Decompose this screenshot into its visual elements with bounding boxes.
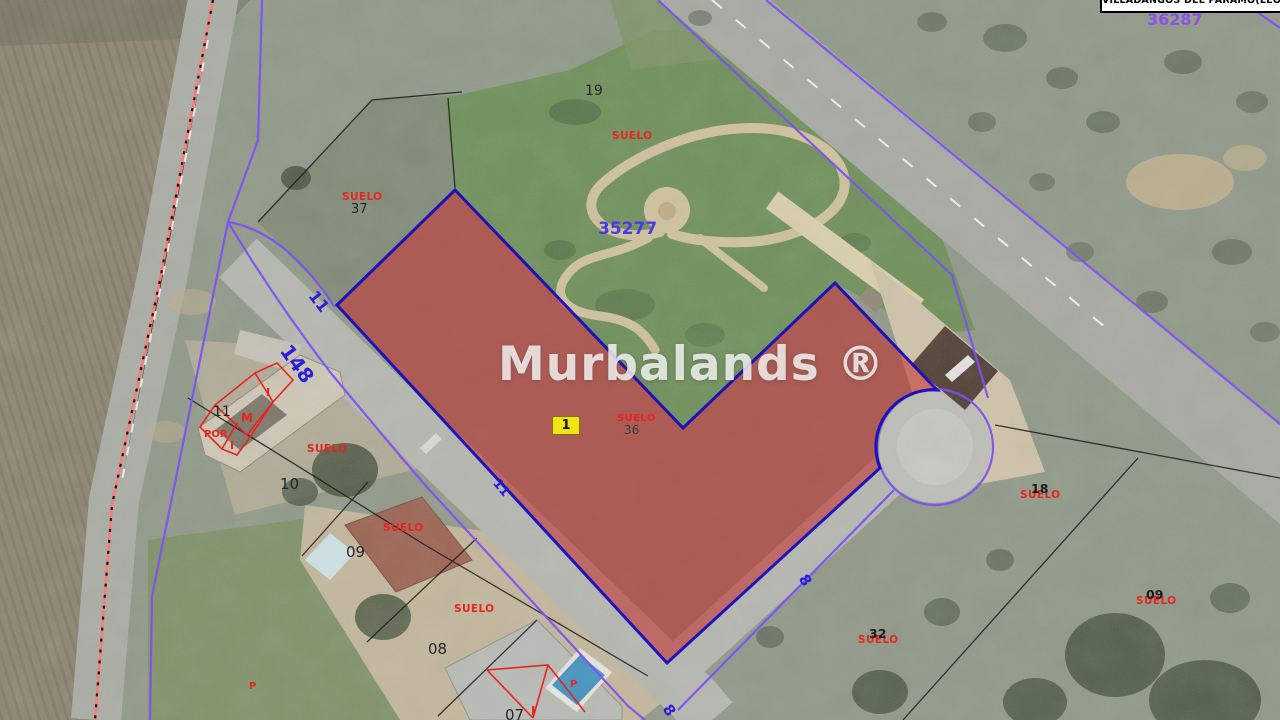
municipality-label: VILLADANGOS DEL PARAMO(LEON) xyxy=(1100,0,1280,13)
building-mark-p2: P xyxy=(249,682,256,692)
parcel-label-09b: SUELO 09 xyxy=(1136,591,1177,607)
cadastral-reference: 35277 xyxy=(598,221,657,238)
sector-code: 36287 xyxy=(1147,12,1203,28)
parcel-number-18: 18 xyxy=(1031,483,1048,496)
parcel-label-18: SUELO 18 xyxy=(1020,485,1061,501)
building-mark-i3: I xyxy=(531,705,535,717)
suelo-label-11: SUELO xyxy=(307,444,348,455)
parcel-number-08: 08 xyxy=(428,642,447,657)
parcel-number-37: 37 xyxy=(351,203,368,216)
suelo-label-09: SUELO xyxy=(383,523,424,534)
building-mark-m: M xyxy=(241,412,253,424)
suelo-label-08: SUELO xyxy=(454,604,495,615)
building-mark-p1: P xyxy=(570,680,577,690)
building-mark-por: POR xyxy=(204,430,228,440)
parcel-number-19: 19 xyxy=(585,84,603,98)
selected-parcel-badge[interactable]: 1 xyxy=(552,416,580,435)
parcel-number-07: 07 xyxy=(505,708,524,720)
suelo-label-park: SUELO xyxy=(612,131,653,142)
parcel-number-32: 32 xyxy=(869,628,886,641)
cadastral-map-viewport[interactable]: 19 SUELO SUELO 37 35277 11 148 1 SUELO 3… xyxy=(0,0,1280,720)
building-mark-i2: I xyxy=(230,440,234,451)
parcel-number-10: 10 xyxy=(280,477,299,492)
watermark: Murbalands ® xyxy=(498,341,885,388)
parcel-label-32: SUELO 32 xyxy=(858,630,899,646)
parcel-number-36: 36 xyxy=(624,424,639,436)
building-mark-i1: I xyxy=(266,387,270,398)
parcel-number-11: 11 xyxy=(213,405,231,419)
parcel-number-09: 09 xyxy=(346,545,365,560)
suelo-label-37: SUELO xyxy=(342,192,383,203)
parcel-number-09b: 09 xyxy=(1146,589,1163,602)
